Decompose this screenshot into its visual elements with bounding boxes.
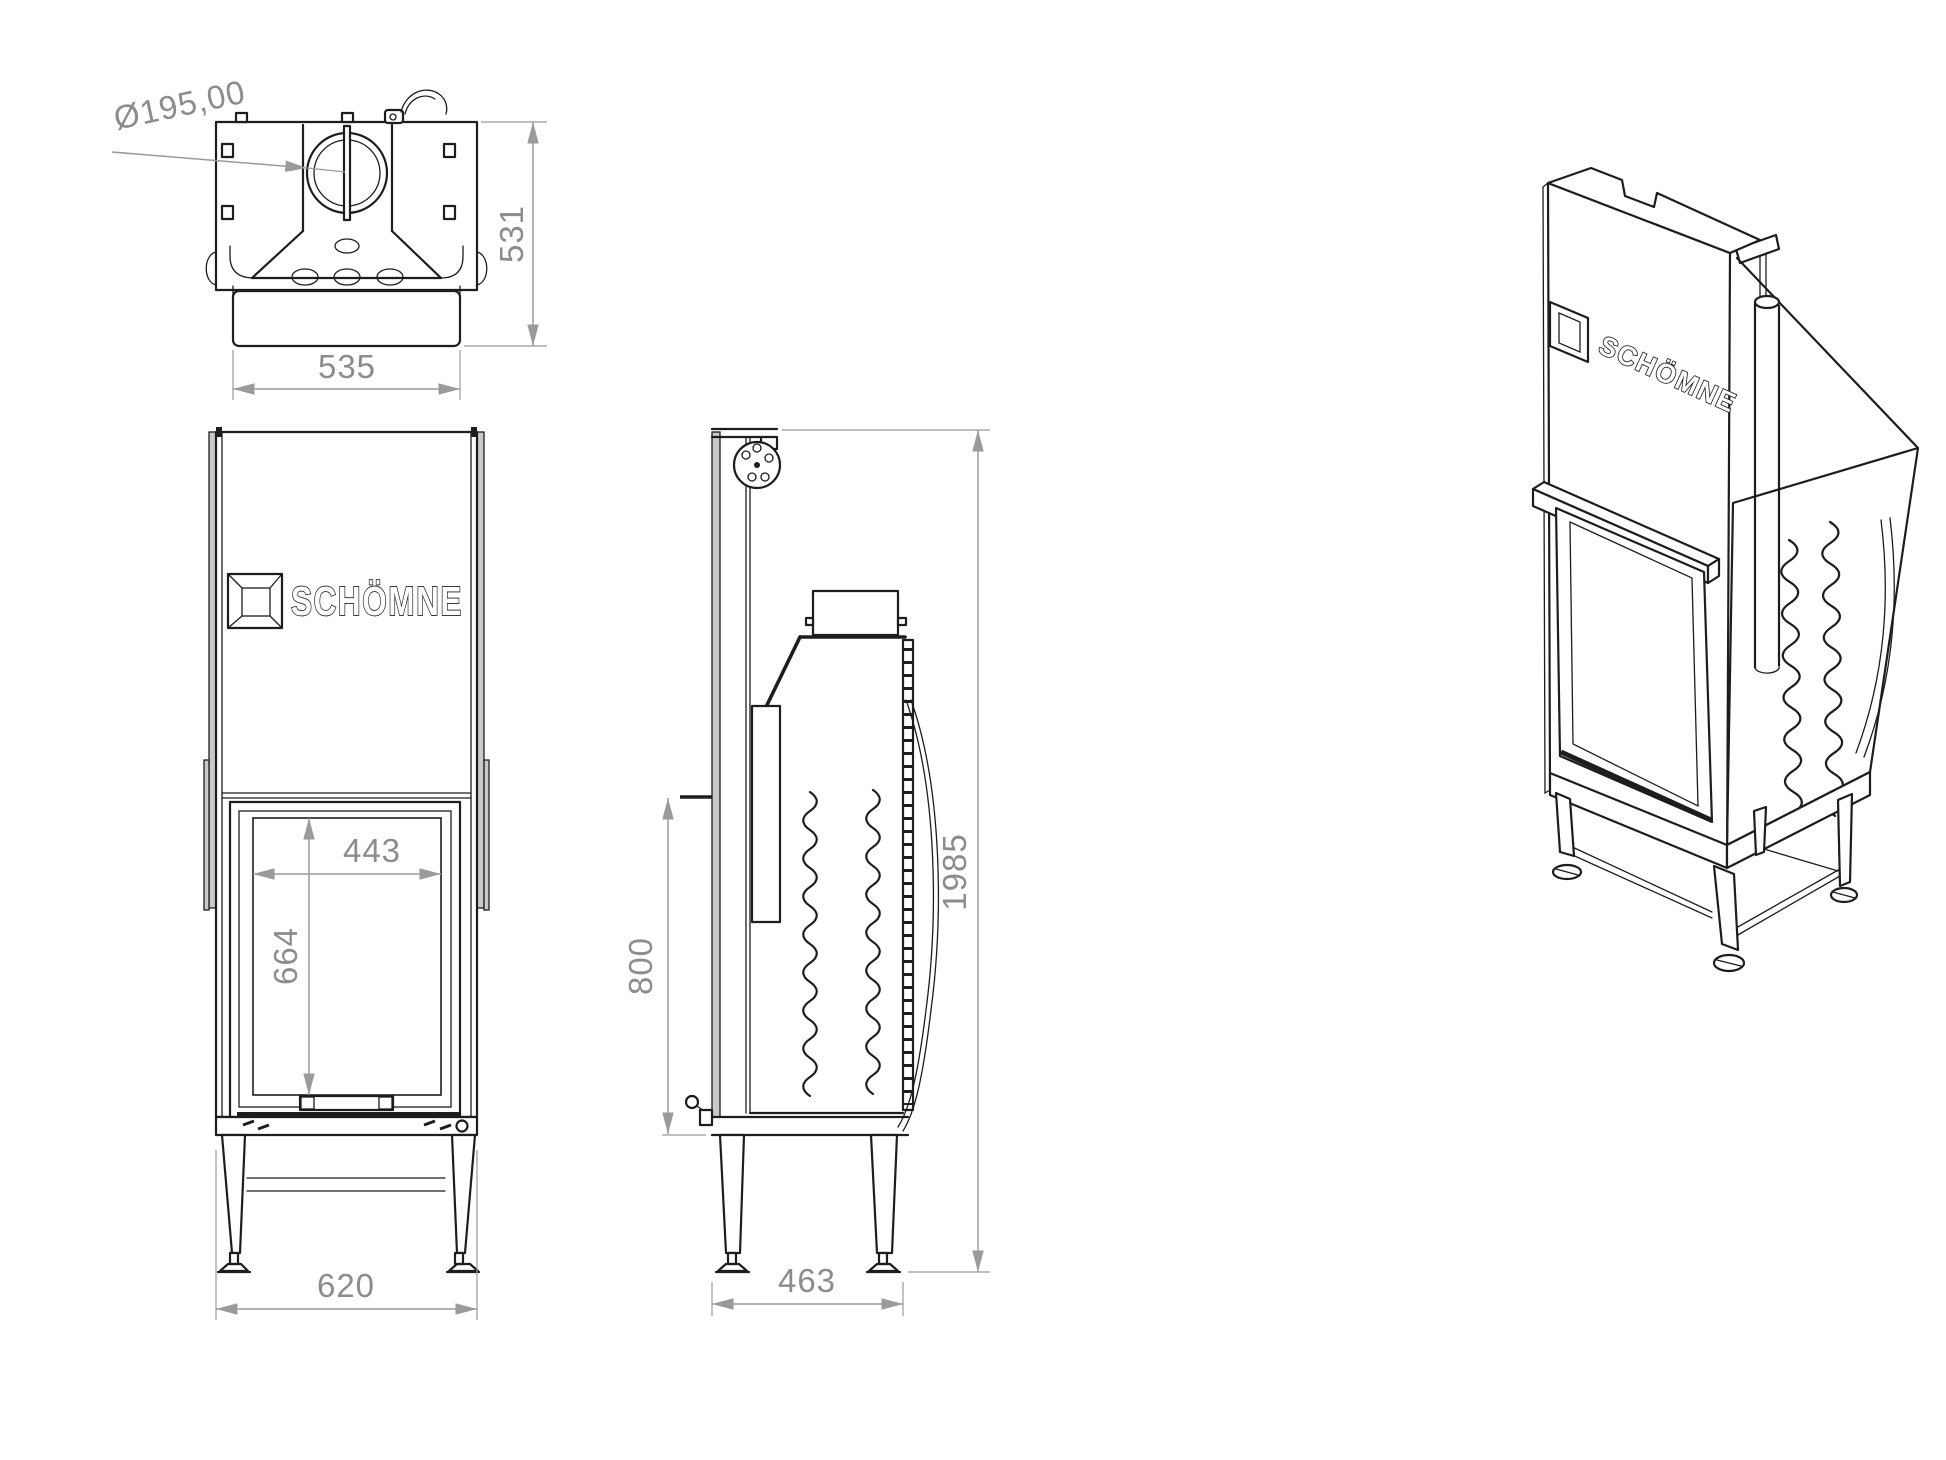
damper-rod bbox=[344, 126, 350, 220]
slope-top-edge bbox=[1737, 258, 1918, 448]
mounting-tab bbox=[444, 144, 455, 157]
top-bracket bbox=[712, 429, 777, 437]
leg bbox=[222, 1135, 245, 1253]
iso-crossbar bbox=[1568, 845, 1712, 918]
iso-crossbar bbox=[1736, 869, 1840, 936]
ignition-cable bbox=[401, 90, 447, 114]
counterweight-rod bbox=[1760, 252, 1766, 300]
glass-height-label: 664 bbox=[267, 927, 304, 985]
foot-stem bbox=[230, 1253, 238, 1264]
iso-leg bbox=[1714, 866, 1738, 950]
dim-base-height-800: 800 bbox=[622, 797, 712, 1135]
top-width-label: 535 bbox=[318, 348, 376, 385]
counterweight-channel bbox=[752, 706, 780, 922]
technical-drawing-sheet: Ø195,00 531 535 SCHÖMNE bbox=[0, 0, 1946, 1460]
air-control-knob bbox=[457, 1121, 468, 1132]
flue-box-tab bbox=[898, 618, 906, 625]
dim-top-width-535: 535 bbox=[233, 348, 460, 400]
leg bbox=[452, 1135, 475, 1253]
leg bbox=[720, 1135, 744, 1253]
side-fin-edge-left bbox=[204, 760, 209, 910]
adjustable-foot bbox=[447, 1264, 479, 1272]
total-height-label: 1985 bbox=[936, 833, 973, 910]
foot-stem bbox=[728, 1253, 736, 1264]
top-corner-notch bbox=[471, 427, 477, 437]
leg-crossbar bbox=[247, 1178, 445, 1191]
side-fin-edge-right bbox=[484, 760, 489, 910]
dim-front-width-620: 620 bbox=[216, 1150, 477, 1320]
mounting-tab bbox=[222, 206, 233, 219]
mounting-tab bbox=[444, 206, 455, 219]
body-bottom-lines bbox=[712, 1113, 908, 1135]
front-width-label: 620 bbox=[317, 1267, 375, 1304]
top-view-right-corner-bump bbox=[477, 252, 487, 285]
top-view bbox=[206, 90, 487, 346]
side-view bbox=[686, 429, 938, 1272]
isometric-view: SCHÖMNE bbox=[1533, 168, 1918, 971]
ash-lever-knob bbox=[686, 1096, 698, 1108]
brand-logo-text: SCHÖMNE bbox=[291, 578, 463, 624]
adjustable-foot bbox=[218, 1264, 250, 1272]
top-height-label: 531 bbox=[493, 205, 530, 263]
iso-leg bbox=[1556, 793, 1574, 856]
foot-stem bbox=[879, 1253, 887, 1264]
mounting-tab bbox=[222, 144, 233, 157]
adjustable-foot bbox=[716, 1264, 749, 1272]
iso-leg-back bbox=[1754, 807, 1766, 855]
glass-width-label: 443 bbox=[343, 832, 401, 869]
heat-fin-wave bbox=[866, 790, 880, 1094]
flue-connector-box bbox=[813, 591, 898, 635]
iso-crossbar bbox=[1764, 849, 1838, 871]
ignition-cable-inner bbox=[405, 96, 435, 114]
leg bbox=[871, 1135, 897, 1253]
top-edge-tab bbox=[342, 113, 353, 122]
counterweight-tube-top bbox=[1755, 296, 1779, 308]
drawing-canvas: Ø195,00 531 535 SCHÖMNE bbox=[0, 0, 1946, 1460]
depth-label: 463 bbox=[778, 1262, 836, 1299]
top-view-left-corner-bump bbox=[206, 252, 216, 285]
top-corner-notch bbox=[216, 427, 222, 437]
pulley-hub bbox=[754, 462, 760, 468]
front-panel-edge bbox=[712, 432, 720, 1117]
foot-stem bbox=[455, 1253, 463, 1264]
iso-leg bbox=[1838, 794, 1852, 886]
base-height-label: 800 bbox=[622, 937, 659, 995]
adjustable-foot bbox=[867, 1264, 900, 1272]
side-view-dimensions: 800 1985 463 bbox=[622, 430, 990, 1316]
bottom-apron bbox=[216, 1117, 477, 1135]
front-logo: SCHÖMNE bbox=[228, 574, 463, 628]
inner-wall-lines bbox=[746, 437, 750, 1113]
heat-fin-wave bbox=[803, 792, 817, 1096]
cable-bracket bbox=[385, 110, 403, 123]
ash-lever-mount bbox=[700, 1110, 712, 1125]
top-view-base-plate bbox=[233, 291, 460, 346]
flue-box-tab bbox=[806, 618, 813, 625]
top-edge-tab bbox=[236, 113, 247, 122]
top-plate-slope bbox=[766, 637, 800, 707]
